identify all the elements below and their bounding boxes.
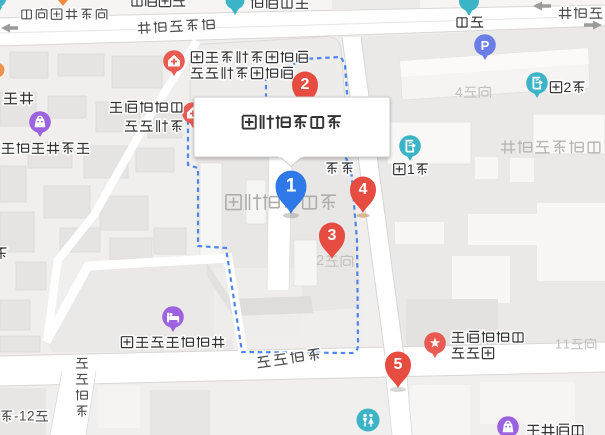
svg-text:1: 1: [563, 337, 570, 352]
svg-text:2: 2: [301, 76, 310, 93]
svg-text:-: -: [14, 409, 19, 424]
svg-text:1: 1: [286, 176, 297, 197]
svg-text:2: 2: [564, 79, 572, 95]
svg-text:4: 4: [455, 84, 463, 100]
svg-text:P: P: [481, 38, 490, 53]
svg-text:1: 1: [407, 161, 415, 177]
svg-text:3: 3: [328, 227, 337, 244]
svg-text:1: 1: [19, 409, 27, 424]
svg-text:5: 5: [394, 356, 403, 373]
svg-text:2: 2: [316, 253, 324, 269]
svg-text:1: 1: [555, 337, 562, 352]
svg-text:2: 2: [27, 409, 35, 424]
svg-text:4: 4: [359, 181, 368, 198]
